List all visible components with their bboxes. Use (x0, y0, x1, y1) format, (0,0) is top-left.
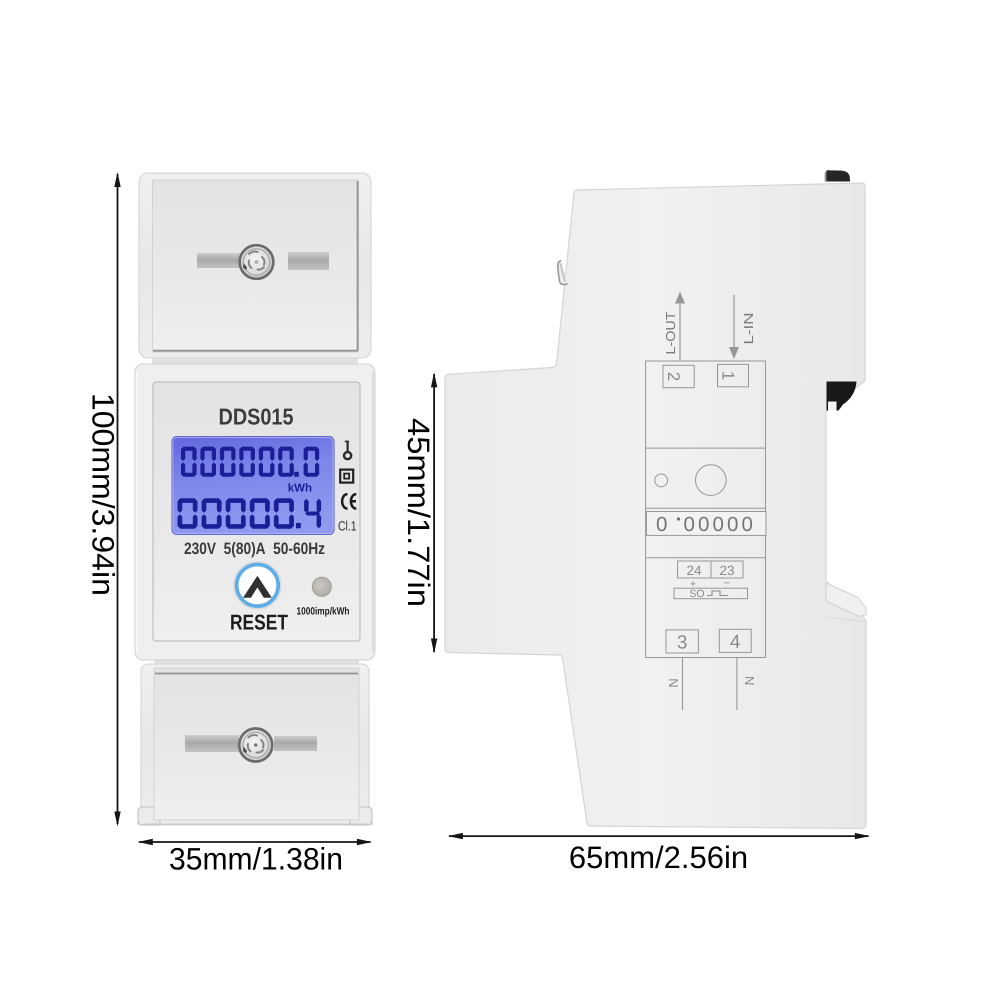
svg-text:Cl.1: Cl.1 (338, 519, 357, 534)
svg-text:2: 2 (664, 372, 683, 381)
svg-text:23: 23 (719, 563, 734, 578)
svg-text:1: 1 (719, 371, 738, 380)
svg-text:0: 0 (656, 513, 667, 536)
svg-text:45mm/1.77in: 45mm/1.77in (401, 418, 436, 607)
svg-text:35mm/1.38in: 35mm/1.38in (169, 842, 343, 877)
svg-text:3: 3 (677, 633, 688, 654)
svg-text:N: N (742, 676, 757, 685)
svg-text:RESET: RESET (230, 611, 288, 635)
svg-text:100mm/3.94in: 100mm/3.94in (86, 393, 121, 596)
svg-text:N: N (666, 678, 681, 687)
svg-text:SO: SO (689, 588, 704, 600)
svg-text:65mm/2.56in: 65mm/2.56in (569, 840, 748, 875)
svg-text:230V 5(80)A 50-60Hz: 230V 5(80)A 50-60Hz (184, 540, 325, 558)
svg-text:24: 24 (686, 563, 702, 578)
svg-text:L-IN: L-IN (741, 313, 756, 345)
svg-text:4: 4 (730, 632, 741, 653)
svg-text:kWh: kWh (288, 483, 312, 495)
svg-text:00000: 00000 (684, 513, 757, 536)
svg-text:DDS015: DDS015 (219, 404, 294, 430)
svg-text:1000imp/kWh: 1000imp/kWh (297, 606, 350, 618)
svg-text:L-OUT: L-OUT (663, 311, 678, 354)
